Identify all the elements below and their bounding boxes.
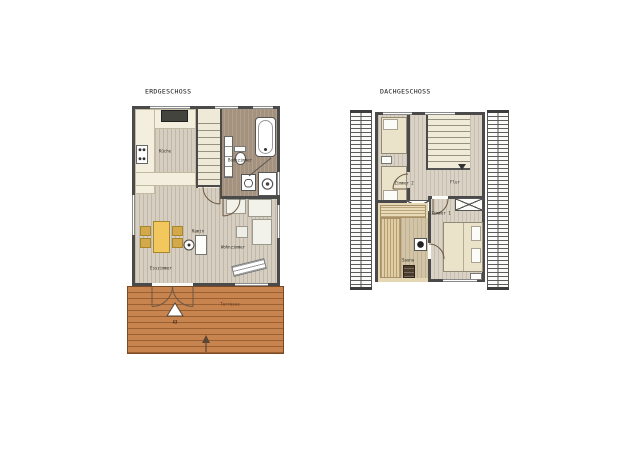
sauna-bench-top [380,205,426,218]
dg-stair-rail [428,168,470,170]
nightstand [381,156,392,164]
dachgeschoss-title: DACHGESCHOSS [380,88,431,96]
room-label-sauna: Sauna [402,258,414,263]
room-label-esszimmer: Esszimmer [150,266,172,271]
sauna-bucket [414,238,427,251]
roof-strip-left [350,110,372,290]
room-label-terrasse: Terrasse [220,302,239,307]
room-label-zimmer2: Zimmer 2 [394,181,413,186]
roof-cap [350,110,372,113]
floorplan-sheet: ERDGESCHOSS [0,0,640,452]
fireplace-hearth [195,235,207,255]
door-opening [432,196,448,199]
sauna-heater [403,265,415,278]
bath-sink [258,172,277,196]
window [215,106,238,109]
bed-split-line [463,223,464,271]
wardrobe [455,198,483,211]
window [150,106,190,109]
window [132,195,135,235]
window [425,112,455,115]
window [253,106,273,109]
cooktop [136,145,148,164]
bathtub [255,117,276,157]
erdgeschoss-title: ERDGESCHOSS [145,88,191,96]
window [383,112,412,115]
bed-pillow [471,248,481,263]
bed-pillow [383,119,398,130]
window [443,279,477,282]
terrace-door-opening [152,283,193,286]
room-label-flur: Flur [450,180,460,185]
dining-chair [140,238,151,248]
sofa-segment [252,219,272,245]
a3-marker-label: A3 [173,320,178,325]
dining-table [153,221,170,253]
door-opening [428,243,431,259]
sauna-bench-left [380,218,401,278]
sofa-segment [226,199,246,214]
window [277,172,280,195]
window [235,283,268,286]
kitchen-sink [161,110,188,122]
coffee-table [236,226,248,238]
room-label-kamin: Kamin [192,229,204,234]
bed-pillow [471,226,481,241]
dining-chair [172,238,183,248]
room-label-zimmer1: Zimmer 1 [431,211,450,216]
sofa-segment [248,199,272,217]
bathtub-drain [264,148,267,151]
roof-strip-right [487,110,509,290]
room-label-badezimmer: Badezimmer [228,158,252,163]
dg-stair-treads [428,119,470,162]
line-overlay [0,0,640,452]
window [277,205,280,238]
dining-chair [172,226,183,236]
dg-partition [407,115,410,172]
stair-bottom-wall [196,185,222,187]
room-label-wohnzimmer: Wohnzimmer [221,245,245,250]
terrace-deck [127,286,284,354]
washing-machine [241,174,256,191]
dining-chair [140,226,151,236]
roof-cap [350,287,372,290]
roof-cap [487,110,509,113]
room-label-kueche: Küche [159,149,171,154]
kitchen-counter-bottom [135,172,196,186]
eg-stair-treads [198,120,220,180]
roof-cap [487,287,509,290]
bath-left-wall [220,109,222,197]
